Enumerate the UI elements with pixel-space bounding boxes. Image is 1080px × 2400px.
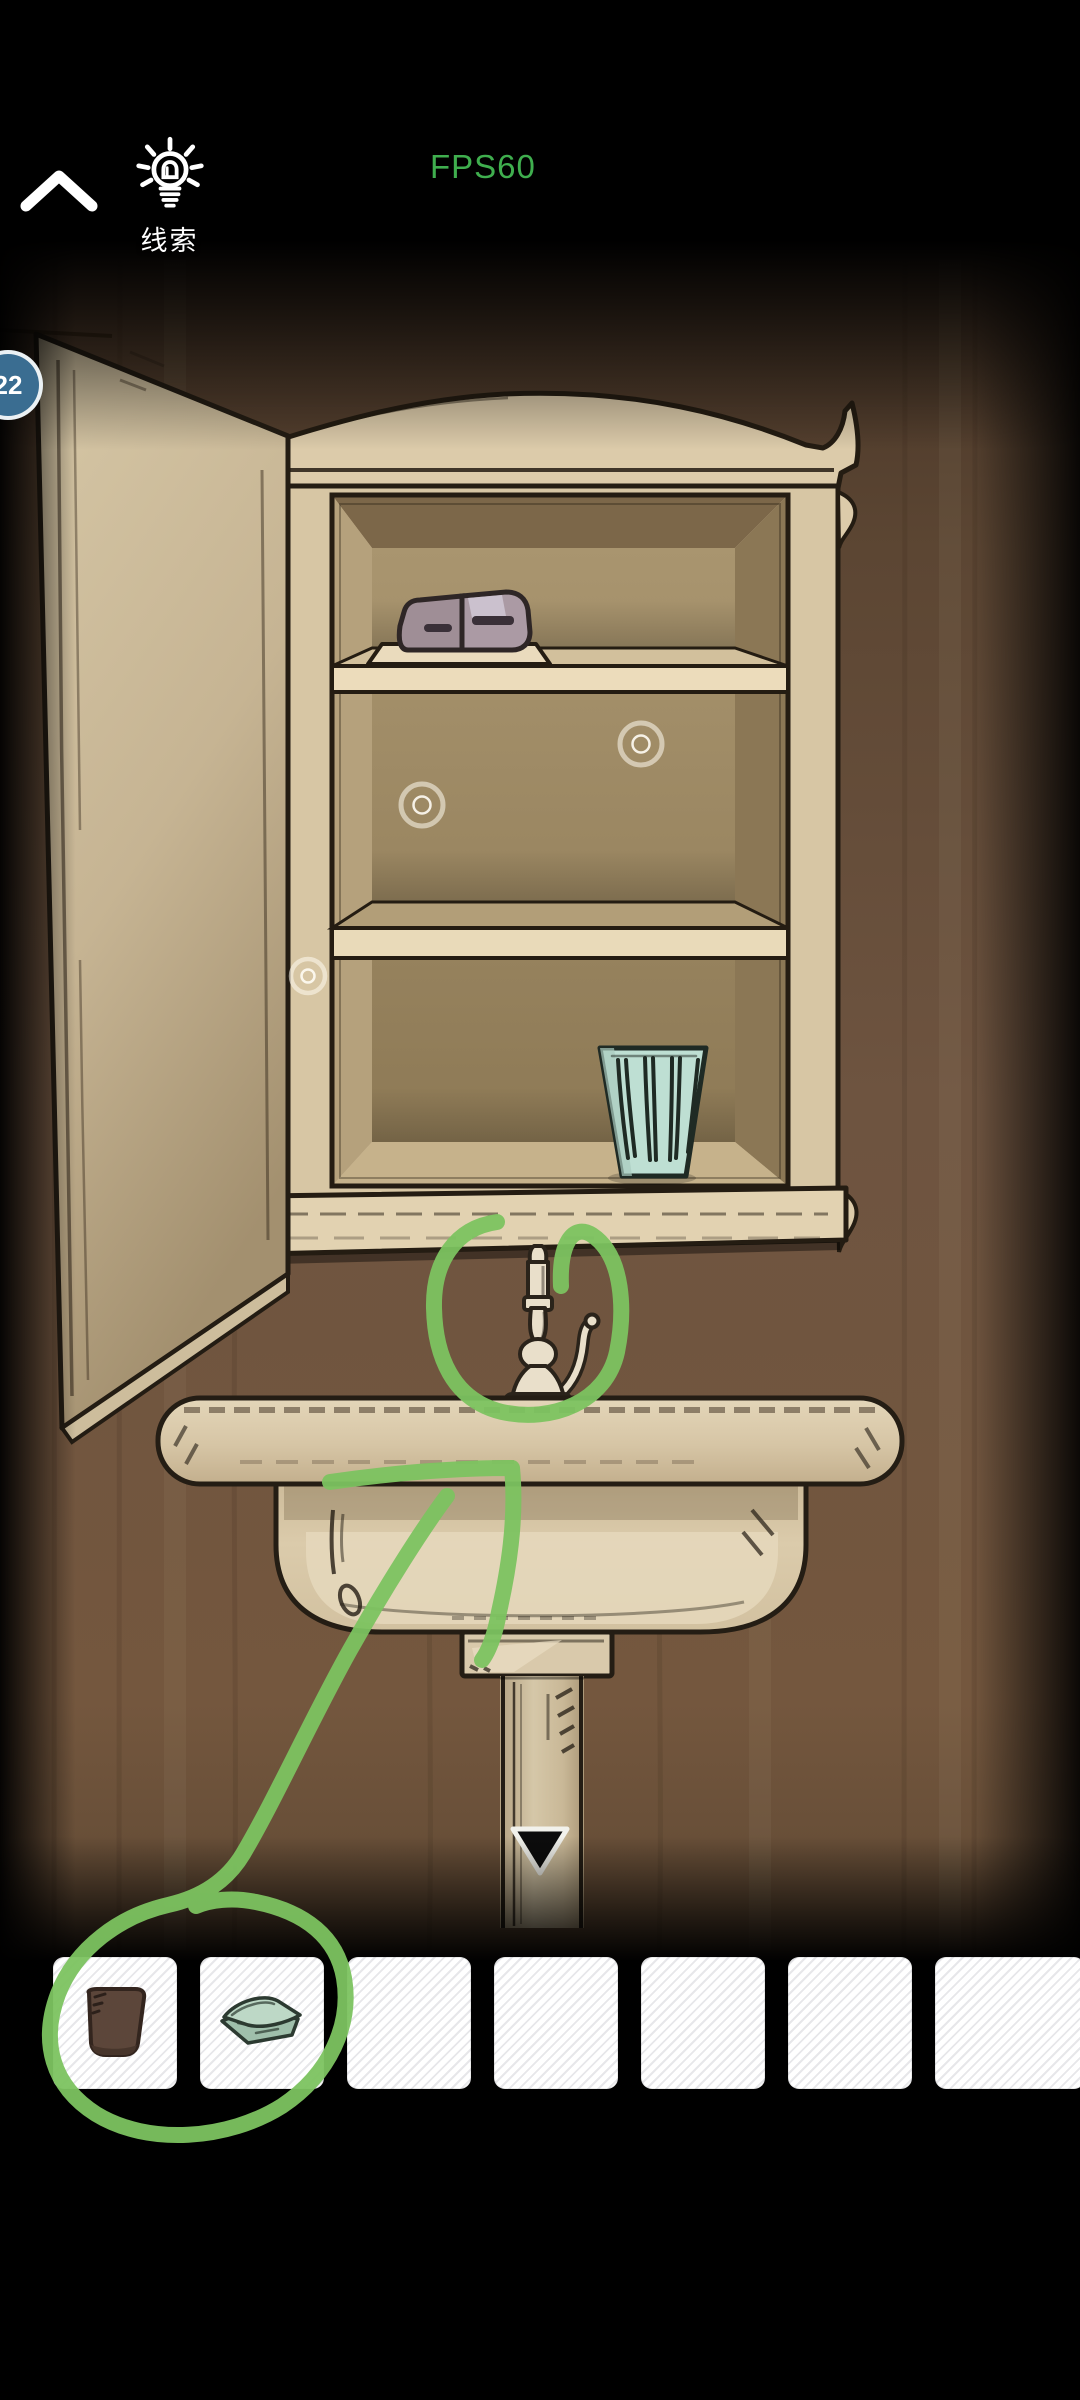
hint-label: 线索 (141, 219, 199, 258)
sink-drain-block (462, 1632, 612, 1676)
hint-button[interactable]: 线索 (122, 126, 217, 258)
lightbulb-icon (125, 126, 215, 217)
item-brown-cup-icon[interactable] (53, 1957, 177, 2089)
sink-counter[interactable] (158, 1398, 902, 1484)
cabinet-bottom-board (262, 1188, 846, 1260)
inventory-slot-1[interactable] (53, 1957, 177, 2089)
chevron-up-icon (14, 160, 104, 220)
cabinet-door[interactable] (36, 334, 288, 1442)
badge-count: 22 (0, 370, 22, 401)
cabinet-shelf-2 (332, 902, 788, 958)
sink-pedestal (500, 1676, 584, 1928)
inventory-slot-3[interactable] (347, 1957, 471, 2089)
sink-basin[interactable] (276, 1484, 806, 1632)
inventory-slot-7[interactable] (935, 1957, 1080, 2089)
inventory-slot-4[interactable] (494, 1957, 618, 2089)
cabinet-interior (332, 495, 788, 1186)
collapse-hud-button[interactable] (14, 160, 104, 220)
hud: 线索 FPS60 (0, 0, 1080, 300)
fps-counter: FPS60 (430, 148, 536, 186)
inventory-slot-2[interactable] (200, 1957, 324, 2089)
inventory-bar (0, 1957, 1080, 2089)
inventory-slot-5[interactable] (641, 1957, 765, 2089)
item-green-towel-icon[interactable] (200, 1957, 324, 2089)
inventory-slot-6[interactable] (788, 1957, 912, 2089)
